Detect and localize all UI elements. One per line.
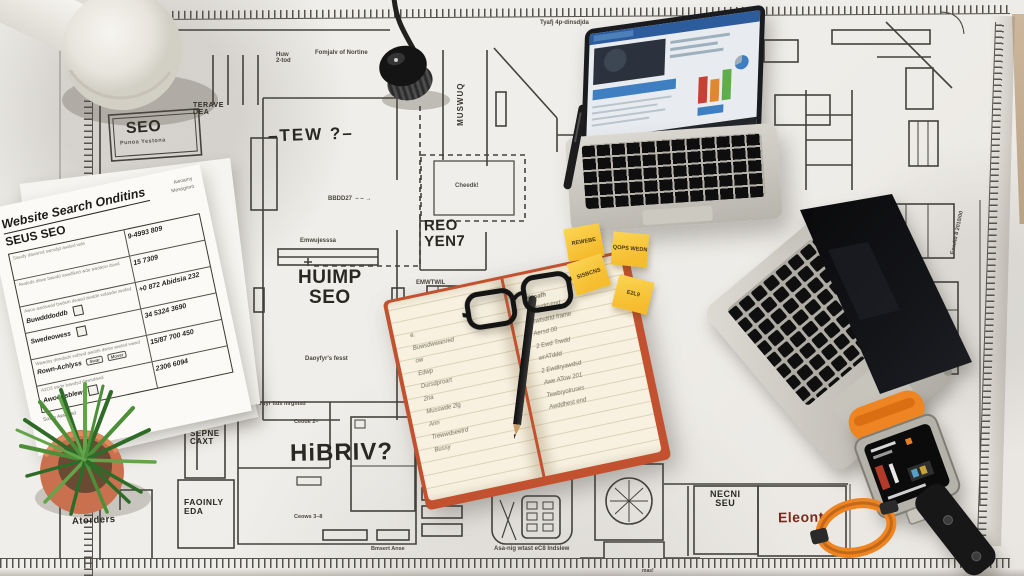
desk-lamp: [0, 0, 218, 126]
webpage-pie: [735, 54, 749, 70]
webpage-hero-image: [593, 39, 666, 86]
desk-flatlay-photo: SEO Punoa Yestona TERAVEDEA –TEW ?– Huw …: [0, 0, 1024, 576]
laptop-top-trackpad: [642, 205, 713, 225]
laptop-top-deck: [565, 123, 783, 234]
cable-knob: [375, 0, 450, 110]
webpage-bar-chart: [698, 48, 749, 104]
laptop-top: [568, 12, 783, 222]
potted-plant: [17, 384, 155, 518]
webpage-badge: [697, 104, 723, 116]
laptop-top-keyboard: [581, 133, 765, 209]
sticky-note: QOPS WEDN: [611, 231, 650, 267]
cable-ring: [806, 494, 907, 563]
